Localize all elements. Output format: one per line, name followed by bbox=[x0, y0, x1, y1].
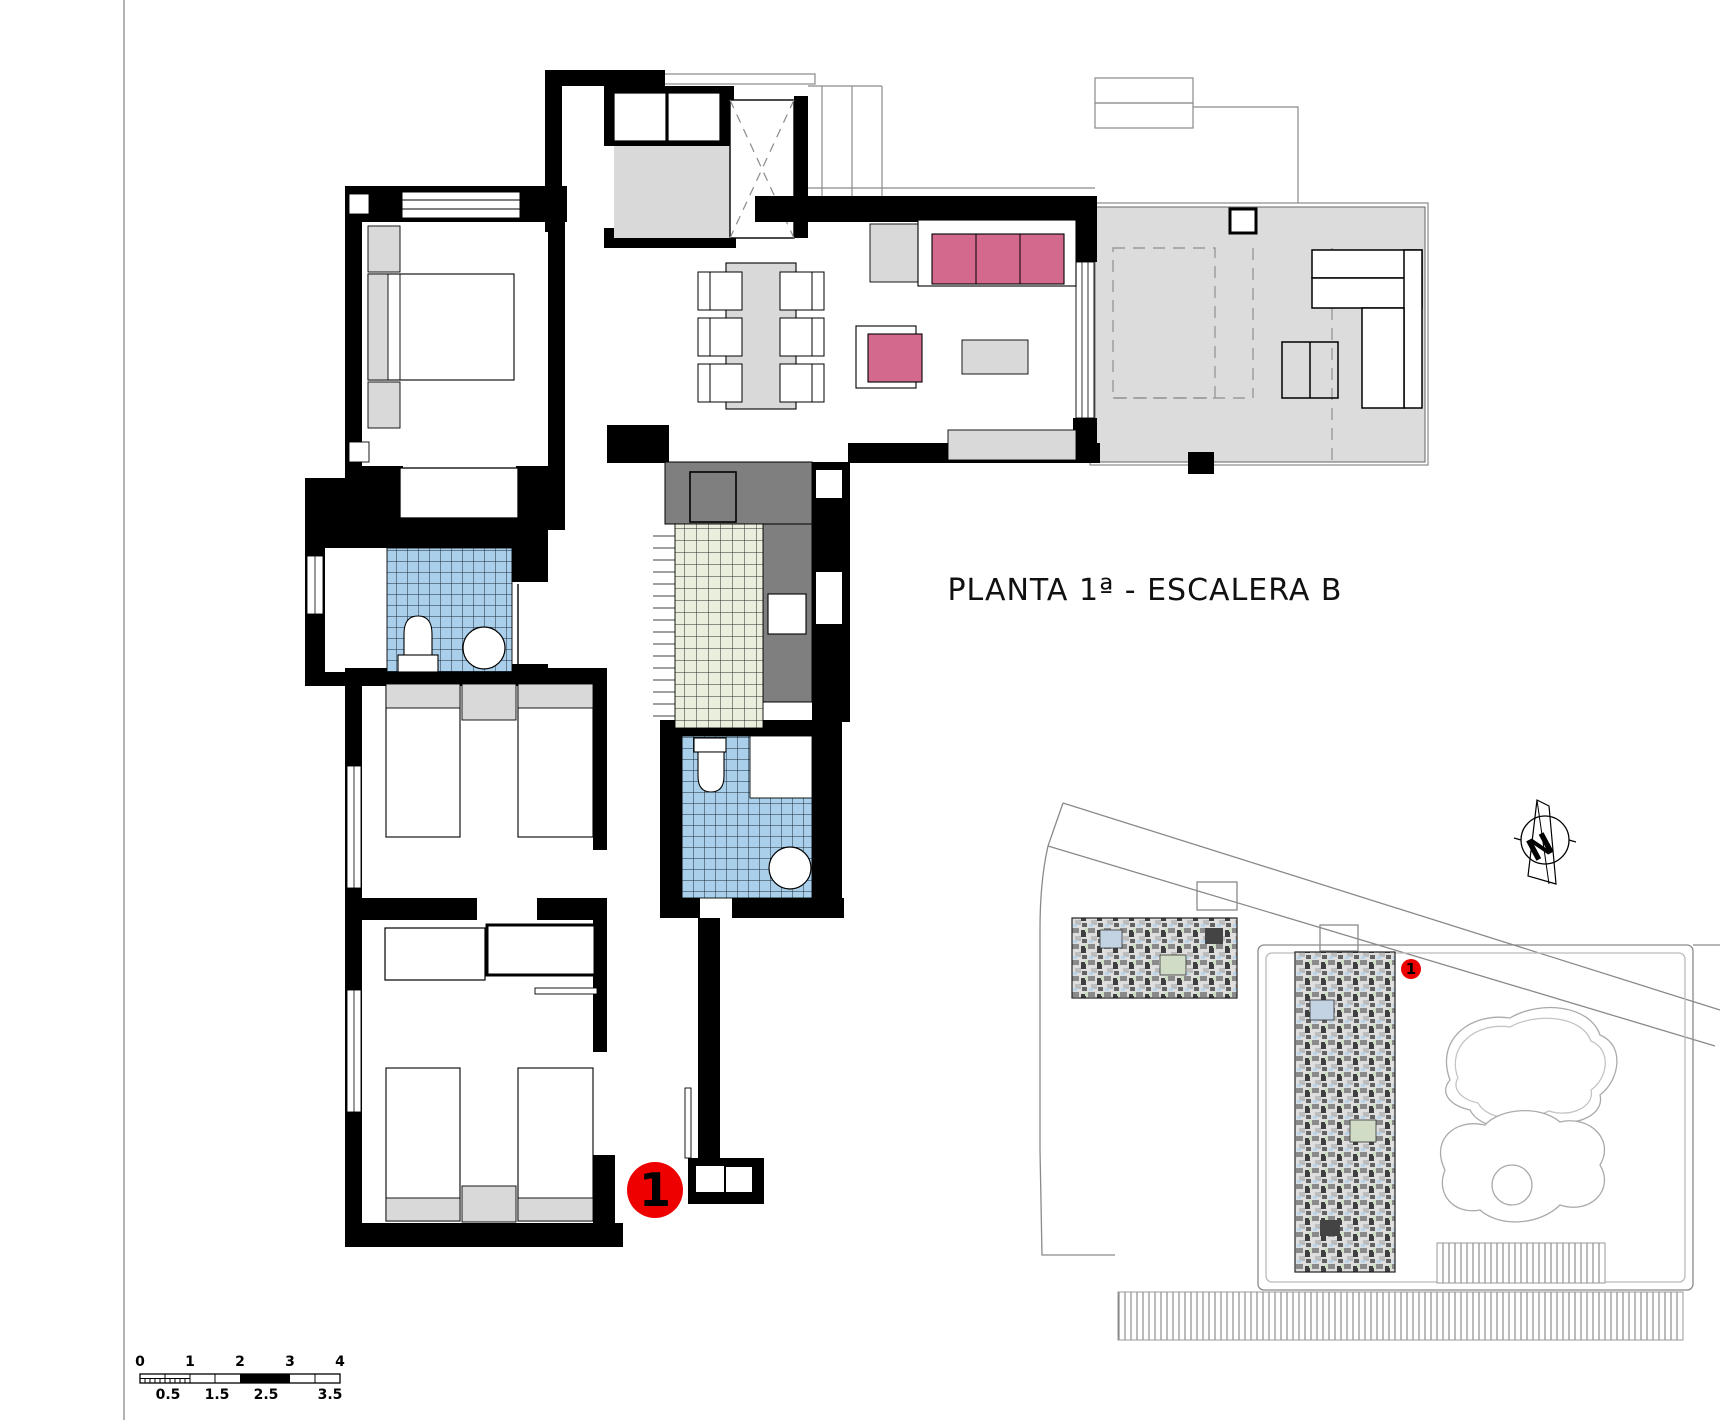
terrace-column bbox=[1230, 209, 1256, 233]
scale-label: 3.5 bbox=[318, 1387, 343, 1403]
wardrobe bbox=[487, 925, 595, 975]
nightstand bbox=[368, 226, 400, 272]
bathroom-2-door-gap bbox=[700, 898, 732, 918]
site-plan: 1 N bbox=[1040, 800, 1720, 1340]
floorplan-page: 1 PLANTA 1ª - ESCALERA B bbox=[0, 0, 1722, 1420]
site-building-b bbox=[1295, 952, 1395, 1272]
site-badge-label: 1 bbox=[1406, 960, 1416, 978]
twin-bed bbox=[386, 684, 460, 837]
bedroom-2-door-gap bbox=[477, 898, 537, 920]
scale-label: 4 bbox=[335, 1354, 345, 1370]
twin-bed bbox=[518, 1068, 593, 1221]
living-room bbox=[856, 220, 1076, 460]
terrace-sliding-door bbox=[1076, 262, 1094, 418]
nightstand bbox=[368, 382, 400, 428]
kitchen-tiled-floor bbox=[675, 524, 763, 728]
terrace bbox=[1090, 203, 1428, 465]
stair-flight bbox=[614, 93, 666, 141]
armchair bbox=[856, 326, 922, 388]
site-building-a bbox=[1072, 918, 1237, 998]
kitchen-appliance bbox=[690, 472, 736, 522]
unit-badge-label: 1 bbox=[639, 1163, 671, 1217]
scale-label: 2.5 bbox=[254, 1387, 279, 1403]
shower-basin bbox=[769, 847, 811, 889]
site-pool bbox=[1441, 1008, 1617, 1222]
shelf bbox=[535, 988, 597, 994]
bathroom-1-door bbox=[512, 582, 548, 664]
north-compass: N bbox=[1514, 800, 1576, 884]
sofa-seats bbox=[932, 234, 1064, 284]
toilet bbox=[694, 738, 726, 792]
scale-label: 1.5 bbox=[205, 1387, 230, 1403]
bedroom-2 bbox=[386, 684, 593, 837]
wall-niche bbox=[349, 442, 369, 462]
kitchen-door-gap bbox=[816, 470, 842, 498]
twin-bed bbox=[518, 684, 593, 837]
shower-basin bbox=[463, 627, 505, 669]
side-table bbox=[870, 224, 922, 282]
stair-flight bbox=[668, 93, 720, 141]
nightstand bbox=[462, 684, 516, 720]
coffee-table bbox=[962, 340, 1028, 374]
window bbox=[307, 556, 323, 614]
unit-number-badge: 1 bbox=[627, 1162, 683, 1218]
double-bed bbox=[368, 274, 514, 380]
kitchen-island bbox=[768, 594, 806, 634]
wall-niche bbox=[349, 194, 369, 214]
nightstand bbox=[462, 1186, 516, 1222]
window bbox=[402, 192, 520, 218]
floorplan-drawing: 1 PLANTA 1ª - ESCALERA B bbox=[0, 0, 1722, 1420]
stair-landing bbox=[614, 146, 730, 238]
dining-area bbox=[698, 263, 824, 409]
window bbox=[347, 990, 361, 1112]
window bbox=[347, 766, 361, 888]
kitchen-tick-marks bbox=[653, 536, 675, 716]
wardrobe bbox=[400, 468, 518, 518]
kitchen-counter bbox=[665, 462, 812, 524]
scale-bar: 0 1 2 3 4 0.5 1.5 2.5 3.5 bbox=[135, 1354, 345, 1403]
bathroom-2 bbox=[682, 736, 812, 898]
main-floor-plan: 1 bbox=[305, 70, 1428, 1247]
kitchen bbox=[653, 462, 812, 728]
scale-label: 0.5 bbox=[156, 1387, 181, 1403]
bathroom-1 bbox=[387, 548, 512, 672]
scale-label: 3 bbox=[285, 1354, 295, 1370]
sideboard bbox=[948, 430, 1076, 460]
kitchen-door-gap bbox=[816, 572, 842, 624]
wardrobe bbox=[385, 928, 485, 980]
plan-title: PLANTA 1ª - ESCALERA B bbox=[947, 573, 1342, 608]
shower-tray bbox=[750, 736, 812, 798]
scale-label: 2 bbox=[235, 1354, 245, 1370]
scale-bar-filled-segment bbox=[240, 1374, 290, 1383]
twin-bed bbox=[386, 1068, 460, 1221]
scale-label: 0 bbox=[135, 1354, 145, 1370]
armchair-seat bbox=[868, 334, 922, 382]
bedroom-3 bbox=[385, 925, 597, 1222]
sofa bbox=[918, 220, 1076, 286]
site-unit-badge: 1 bbox=[1401, 959, 1421, 979]
site-hatched-areas bbox=[1118, 1243, 1683, 1340]
scale-label: 1 bbox=[185, 1354, 195, 1370]
